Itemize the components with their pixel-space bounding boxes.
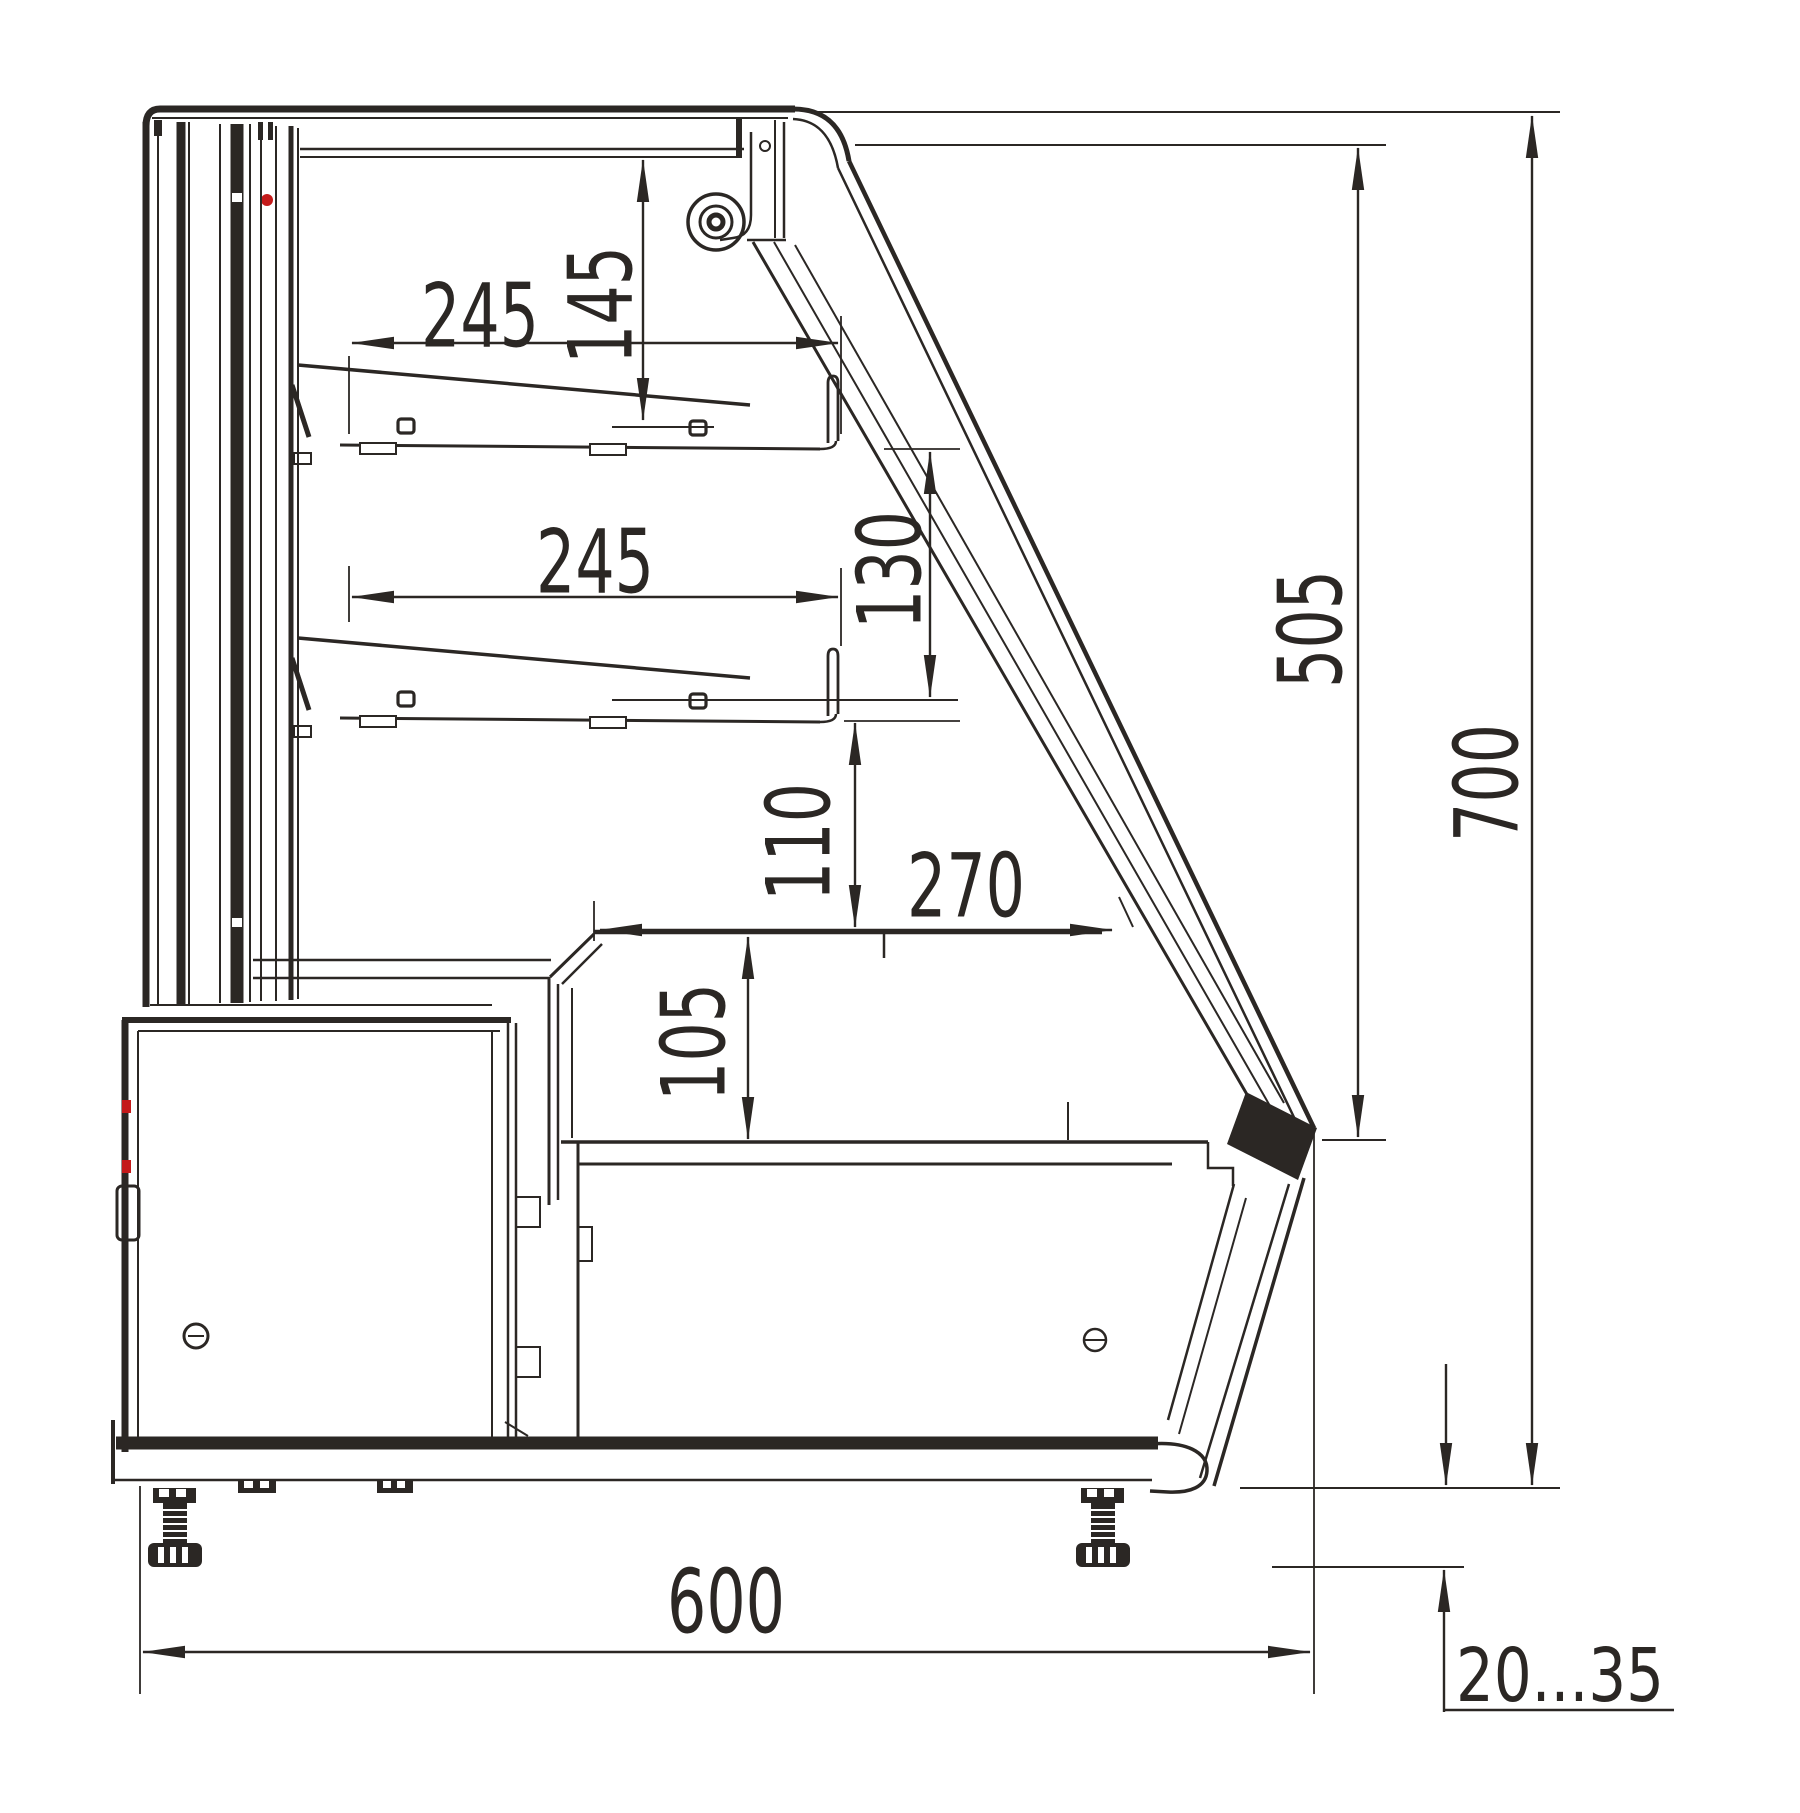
lamp-mid: [700, 206, 732, 238]
shelf-top: [298, 638, 750, 678]
foot-right: [1076, 1488, 1130, 1567]
red-indicator: [122, 1100, 131, 1113]
dimension-canopy-to-upper-shelf: 145: [550, 160, 653, 420]
shelf-underside: [340, 718, 820, 722]
back-panel: [146, 122, 298, 1007]
dimension-shelf-spacing: 130: [839, 449, 961, 697]
dimension-shelf-lower-width: 245: [349, 511, 841, 647]
dim-label-counter-depth: 270: [907, 835, 1025, 938]
red-pin: [261, 194, 273, 206]
front-panel: [1084, 1142, 1304, 1486]
canopy-corner: [793, 109, 849, 161]
glass-outer: [849, 161, 1314, 1128]
counter-step: [1208, 1142, 1233, 1186]
drain-tab: [238, 1480, 276, 1493]
dim-label-foot-adjustment: 20...35: [1456, 1633, 1664, 1719]
dimension-foot-adjustment: 20...35: [1272, 1364, 1674, 1719]
mounting-hole: [232, 193, 242, 202]
bumper: [1150, 1444, 1207, 1493]
dim-label-shelf-spacing: 130: [839, 511, 942, 629]
red-indicator: [122, 1160, 131, 1173]
dimension-glass-opening-height: 505: [855, 145, 1386, 1140]
shelf-screw: [398, 692, 414, 706]
lamp-core: [709, 215, 723, 229]
foot-left: [148, 1488, 202, 1567]
dim-label-well-depth: 105: [643, 983, 746, 1101]
dimension-overall-height: 700: [818, 112, 1560, 1488]
shelf-bracket: [292, 658, 309, 710]
dim-label-overall-height: 700: [1436, 724, 1539, 842]
cross-section-drawing: 245 145 245 130 110 270 105 505: [0, 0, 1800, 1813]
machine-compartment: [117, 1005, 540, 1452]
shelf-lower: [292, 638, 958, 737]
dim-label-shelf-lower-width: 245: [536, 511, 654, 614]
shelf-clip: [590, 444, 626, 455]
dimension-overall-depth: 600: [140, 1131, 1314, 1694]
price-rail: [828, 649, 838, 716]
drain-tab: [377, 1480, 413, 1493]
shelf-clip: [590, 717, 626, 728]
shelf-clip: [360, 716, 396, 727]
drawing-canvas: 245 145 245 130 110 270 105 505: [0, 0, 1800, 1813]
mounting-hole: [232, 918, 242, 927]
dim-label-glass-opening-height: 505: [1260, 570, 1363, 688]
base: [113, 1420, 1158, 1493]
dim-label-shelf-to-counter: 110: [748, 783, 851, 901]
dim-label-shelf-upper-width: 245: [421, 265, 539, 368]
shelf-bracket: [292, 385, 309, 437]
lamp-outer: [688, 194, 744, 250]
shelf-top: [298, 365, 750, 405]
dim-label-overall-depth: 600: [667, 1551, 785, 1654]
shelf-screw: [398, 419, 414, 433]
dimension-counter-depth: 270: [594, 835, 1133, 942]
shelf-underside: [340, 445, 820, 449]
dimension-well-depth: 105: [643, 937, 749, 1139]
screw-icon: [760, 141, 770, 151]
dim-label-canopy-to-upper-shelf: 145: [550, 246, 653, 364]
shelf-clip: [360, 443, 396, 454]
shelf-upper: [292, 365, 838, 464]
